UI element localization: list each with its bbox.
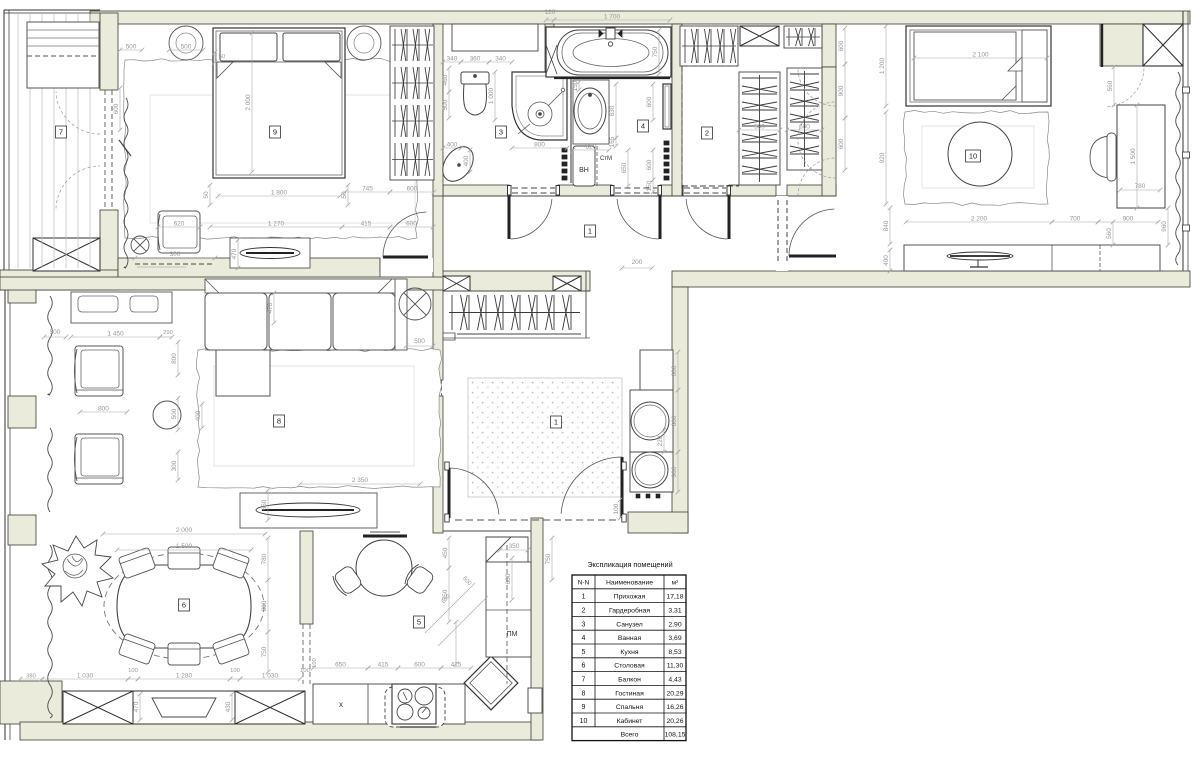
svg-text:5: 5 — [582, 649, 586, 656]
svg-text:Прихожая: Прихожая — [614, 594, 646, 601]
svg-text:3,31: 3,31 — [668, 608, 681, 615]
svg-text:600: 600 — [671, 415, 678, 426]
svg-text:470: 470 — [231, 248, 238, 259]
svg-text:5: 5 — [417, 618, 421, 627]
svg-text:1 030: 1 030 — [262, 672, 279, 679]
svg-text:560: 560 — [1106, 228, 1113, 239]
svg-text:400: 400 — [195, 410, 202, 421]
svg-text:1 500: 1 500 — [1130, 148, 1137, 165]
svg-text:700: 700 — [1070, 215, 1081, 222]
svg-text:600: 600 — [505, 573, 512, 584]
svg-text:2 200: 2 200 — [971, 215, 988, 222]
svg-text:120: 120 — [545, 9, 556, 16]
svg-text:ПМ: ПМ — [507, 631, 518, 638]
svg-text:400: 400 — [463, 155, 470, 166]
svg-text:470: 470 — [267, 302, 274, 313]
svg-text:750: 750 — [545, 553, 552, 564]
svg-text:290: 290 — [163, 330, 173, 336]
svg-text:580: 580 — [754, 123, 765, 130]
svg-text:600: 600 — [406, 220, 417, 227]
svg-text:450: 450 — [442, 547, 449, 558]
svg-text:300: 300 — [170, 251, 181, 258]
svg-text:100: 100 — [613, 503, 620, 514]
svg-text:415: 415 — [361, 220, 372, 227]
svg-text:1 200: 1 200 — [879, 57, 886, 74]
svg-text:560: 560 — [1107, 80, 1114, 91]
svg-text:600: 600 — [414, 661, 425, 668]
svg-text:Санузел: Санузел — [616, 621, 643, 628]
svg-text:165: 165 — [609, 136, 616, 147]
svg-text:630: 630 — [609, 105, 616, 116]
svg-text:7: 7 — [59, 128, 63, 137]
svg-text:2 000: 2 000 — [176, 527, 193, 534]
svg-text:2 000: 2 000 — [245, 94, 252, 111]
svg-text:1: 1 — [582, 594, 586, 601]
svg-text:300: 300 — [171, 460, 178, 471]
svg-text:ВН: ВН — [579, 167, 589, 174]
svg-text:470: 470 — [133, 701, 140, 712]
svg-text:2: 2 — [705, 129, 709, 138]
svg-text:50: 50 — [219, 54, 225, 60]
svg-text:650: 650 — [335, 661, 346, 668]
svg-text:500: 500 — [126, 43, 137, 50]
svg-text:4: 4 — [641, 122, 645, 131]
svg-text:320: 320 — [586, 143, 597, 150]
svg-text:2 350: 2 350 — [352, 477, 369, 484]
svg-text:8: 8 — [277, 417, 281, 426]
svg-text:200: 200 — [632, 259, 643, 266]
svg-text:400: 400 — [883, 255, 890, 266]
svg-text:Балкон: Балкон — [618, 677, 641, 684]
svg-text:430: 430 — [225, 701, 232, 712]
svg-text:20,26: 20,26 — [666, 718, 683, 725]
svg-text:800: 800 — [534, 141, 545, 148]
svg-text:750: 750 — [261, 646, 268, 657]
svg-text:10: 10 — [580, 718, 588, 725]
svg-text:4: 4 — [582, 635, 586, 642]
svg-text:1 700: 1 700 — [604, 13, 621, 20]
svg-text:360: 360 — [470, 55, 481, 62]
svg-text:1: 1 — [588, 227, 592, 236]
svg-text:Столовая: Столовая — [614, 663, 645, 670]
svg-text:1 270: 1 270 — [268, 220, 285, 227]
svg-text:600: 600 — [113, 103, 120, 114]
svg-text:1 030: 1 030 — [77, 672, 94, 679]
svg-text:Спальня: Спальня — [616, 704, 644, 711]
svg-text:600: 600 — [838, 138, 845, 149]
svg-text:1 500: 1 500 — [176, 543, 193, 550]
svg-text:Экспликация помещений: Экспликация помещений — [587, 560, 672, 569]
svg-text:500: 500 — [171, 408, 178, 419]
svg-text:Наименование: Наименование — [606, 580, 653, 587]
svg-text:7: 7 — [582, 677, 586, 684]
svg-text:100: 100 — [312, 658, 318, 668]
svg-text:800: 800 — [261, 600, 268, 611]
svg-text:150: 150 — [572, 80, 579, 91]
svg-text:x: x — [339, 700, 343, 709]
svg-text:900: 900 — [838, 85, 845, 96]
svg-text:750: 750 — [652, 46, 659, 57]
svg-text:960: 960 — [1161, 221, 1168, 232]
svg-text:415: 415 — [378, 661, 389, 668]
svg-text:500: 500 — [181, 43, 192, 50]
svg-text:м²: м² — [672, 579, 679, 586]
svg-text:20,29: 20,29 — [666, 690, 683, 697]
svg-text:340: 340 — [495, 55, 506, 62]
svg-text:4,43: 4,43 — [668, 677, 681, 684]
svg-text:600: 600 — [671, 365, 678, 376]
svg-text:Гардеробная: Гардеробная — [609, 607, 650, 615]
svg-text:10: 10 — [969, 152, 977, 161]
svg-text:3,69: 3,69 — [668, 635, 681, 642]
svg-text:745: 745 — [362, 185, 373, 192]
svg-text:1 450: 1 450 — [107, 330, 124, 337]
svg-text:2,90: 2,90 — [668, 621, 681, 628]
svg-text:Кабинет: Кабинет — [617, 717, 643, 725]
svg-text:340: 340 — [447, 55, 458, 62]
svg-text:650: 650 — [261, 499, 268, 510]
svg-text:840: 840 — [883, 220, 890, 231]
svg-text:1 280: 1 280 — [176, 672, 193, 679]
svg-text:108,15: 108,15 — [665, 732, 686, 739]
svg-text:N-N: N-N — [578, 580, 590, 587]
svg-text:8,53: 8,53 — [668, 649, 681, 656]
svg-text:1 800: 1 800 — [271, 189, 288, 196]
svg-text:Всего: Всего — [621, 732, 639, 739]
svg-text:17,18: 17,18 — [666, 594, 683, 601]
svg-text:150: 150 — [646, 180, 653, 191]
svg-text:Ванная: Ванная — [618, 635, 642, 642]
svg-text:Гостиная: Гостиная — [615, 690, 644, 697]
svg-text:6: 6 — [582, 663, 586, 670]
svg-text:11,30: 11,30 — [667, 663, 684, 670]
svg-text:3: 3 — [499, 128, 503, 137]
svg-text:2: 2 — [582, 608, 586, 615]
svg-text:Кухня: Кухня — [620, 649, 639, 656]
svg-text:100: 100 — [128, 668, 138, 674]
svg-text:СтМ: СтМ — [600, 156, 612, 162]
svg-text:9: 9 — [273, 128, 277, 137]
svg-text:800: 800 — [98, 405, 109, 412]
svg-text:50: 50 — [203, 191, 210, 199]
svg-text:9: 9 — [582, 704, 586, 711]
svg-text:500: 500 — [442, 99, 449, 110]
svg-text:780: 780 — [1135, 183, 1146, 190]
svg-text:460: 460 — [442, 74, 449, 85]
svg-text:400: 400 — [447, 141, 458, 148]
svg-text:380: 380 — [26, 673, 36, 679]
svg-text:100: 100 — [300, 668, 310, 674]
svg-text:3: 3 — [582, 621, 586, 628]
svg-text:100: 100 — [230, 668, 240, 674]
svg-text:600: 600 — [646, 159, 653, 170]
svg-text:2 100: 2 100 — [972, 51, 989, 58]
svg-text:780: 780 — [261, 553, 268, 564]
svg-text:1 000: 1 000 — [488, 87, 495, 104]
svg-text:8: 8 — [582, 690, 586, 697]
svg-text:900: 900 — [671, 466, 678, 477]
svg-text:350: 350 — [509, 543, 520, 550]
svg-text:600: 600 — [646, 96, 653, 107]
svg-text:620: 620 — [174, 220, 185, 227]
svg-text:900: 900 — [1123, 215, 1134, 222]
svg-text:1: 1 — [554, 418, 558, 427]
svg-text:6: 6 — [182, 601, 186, 610]
svg-text:500: 500 — [414, 338, 425, 345]
svg-text:600: 600 — [407, 185, 418, 192]
svg-text:920: 920 — [879, 152, 886, 163]
svg-text:600: 600 — [799, 123, 810, 130]
svg-text:220: 220 — [657, 435, 664, 446]
svg-text:800: 800 — [171, 353, 178, 364]
svg-text:500: 500 — [50, 329, 61, 336]
svg-text:650: 650 — [621, 162, 628, 173]
svg-text:16,26: 16,26 — [666, 704, 683, 711]
svg-text:600: 600 — [838, 40, 845, 51]
